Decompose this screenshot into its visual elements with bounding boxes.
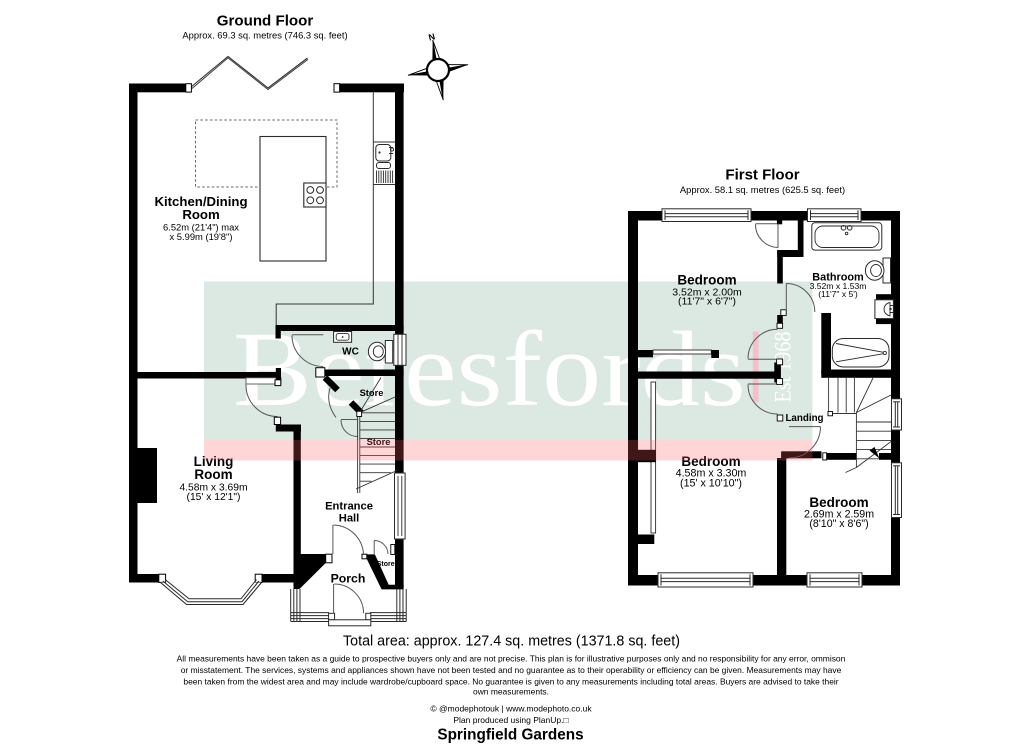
svg-text:Total area: approx. 127.4 sq.: Total area: approx. 127.4 sq. metres (13… [343, 634, 680, 650]
svg-text:All measurements have been tak: All measurements have been taken as a gu… [177, 654, 846, 664]
svg-text:or misstatement. The services,: or misstatement. The services, systems a… [181, 665, 842, 675]
svg-text:own measurements.: own measurements. [473, 687, 549, 697]
svg-text:Est 1968: Est 1968 [771, 332, 796, 403]
svg-text:Plan produced using PlanUp.□: Plan produced using PlanUp.□ [453, 715, 568, 725]
svg-text:Ground Floor: Ground Floor [217, 12, 314, 29]
svg-text:Room: Room [194, 467, 232, 482]
svg-text:x 5.99m (19'8"): x 5.99m (19'8") [170, 231, 233, 242]
svg-text:Porch: Porch [331, 571, 366, 585]
svg-text:(8'10" x 8'6"): (8'10" x 8'6") [809, 518, 868, 530]
svg-text:Room: Room [182, 207, 219, 222]
svg-text:© @modephotouk | www.modephoto: © @modephotouk | www.modephoto.co.uk [430, 703, 592, 713]
svg-text:First Floor: First Floor [725, 166, 799, 183]
svg-text:(15' x 10'10"): (15' x 10'10") [680, 477, 742, 489]
svg-text:WC: WC [342, 347, 359, 358]
svg-text:(11'7" x 5'): (11'7" x 5') [818, 289, 858, 299]
svg-text:Approx. 58.1 sq. metres (625.5: Approx. 58.1 sq. metres (625.5 sq. feet) [680, 184, 845, 195]
svg-text:Landing: Landing [785, 413, 823, 424]
svg-text:(15' x 12'1"): (15' x 12'1") [187, 492, 241, 503]
svg-text:Approx. 69.3 sq. metres (746.3: Approx. 69.3 sq. metres (746.3 sq. feet) [182, 30, 347, 41]
svg-text:Store: Store [377, 561, 395, 568]
svg-text:Entrance: Entrance [325, 500, 373, 512]
svg-text:N: N [428, 31, 437, 42]
svg-text:Springfield Gardens: Springfield Gardens [437, 726, 583, 743]
svg-text:Bedroom: Bedroom [677, 272, 736, 287]
svg-text:(11'7" x 6'7"): (11'7" x 6'7") [678, 296, 736, 308]
svg-text:been taken from the widest are: been taken from the widest area and may … [183, 677, 838, 687]
svg-text:Hall: Hall [339, 512, 360, 524]
